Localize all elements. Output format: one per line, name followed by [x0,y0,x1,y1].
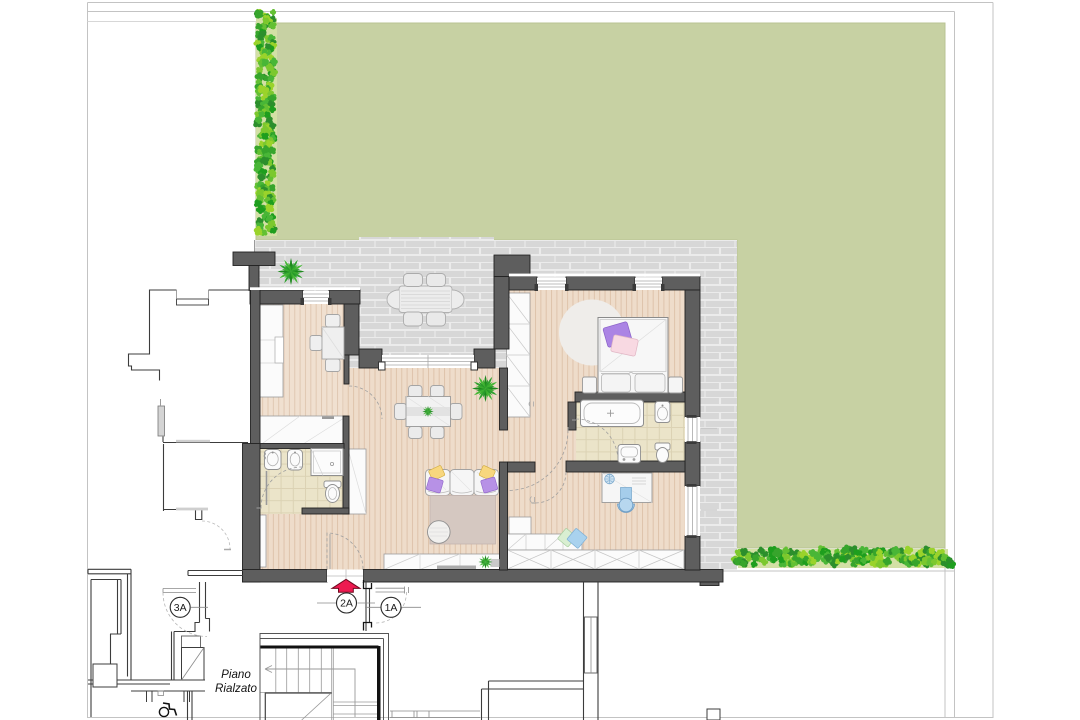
svg-text:Rialzato: Rialzato [215,682,257,695]
svg-text:2A: 2A [340,598,353,610]
svg-text:1A: 1A [385,602,398,614]
svg-text:Piano: Piano [221,668,251,681]
svg-text:3A: 3A [174,602,187,614]
